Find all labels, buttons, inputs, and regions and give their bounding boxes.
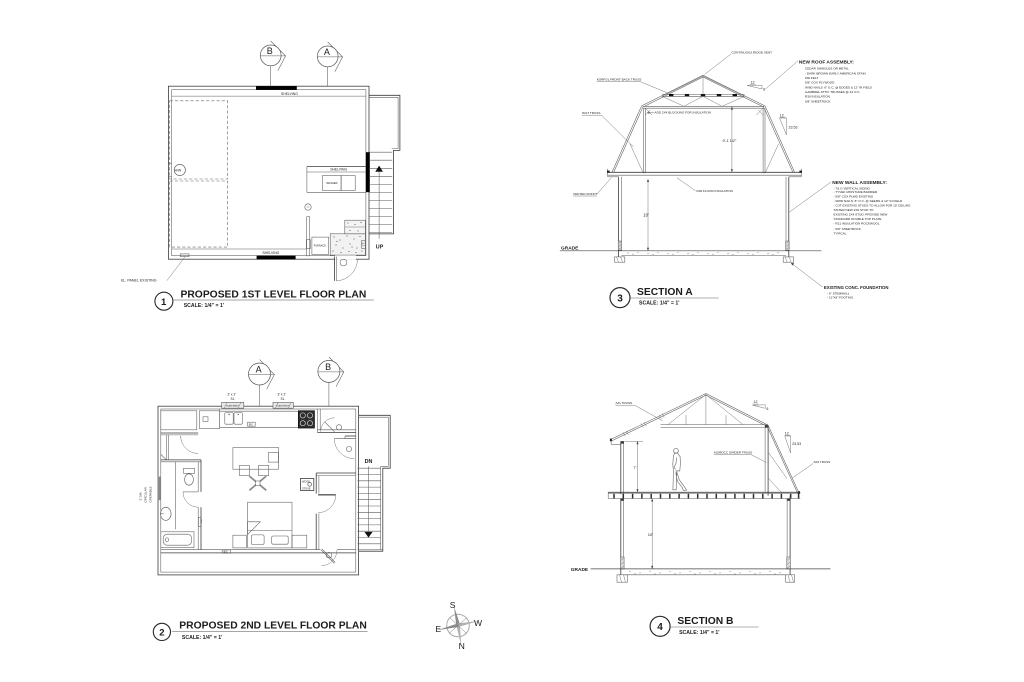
svg-text:5/8" SHEETROCK: 5/8" SHEETROCK	[805, 99, 831, 103]
svg-text:SECTION B: SECTION B	[677, 616, 733, 627]
svg-text:GRADE: GRADE	[571, 567, 589, 573]
svg-text:W/8D NAILS: 6" O.C. @ EDGES &: W/8D NAILS: 6" O.C. @ EDGES & 12" IN FIE…	[805, 85, 873, 89]
svg-text:2: 2	[159, 627, 164, 638]
svg-text:FURNACE: FURNACE	[314, 245, 326, 248]
svg-text:4: 4	[657, 622, 663, 633]
svg-text:SHELVING: SHELVING	[281, 92, 298, 96]
svg-text:6: 6	[763, 88, 765, 92]
svg-text:- W/8D NAILS: 8" O.C. @ SEEMS: - W/8D NAILS: 8" O.C. @ SEEMS & 12" IN F…	[834, 199, 904, 203]
svg-text:3' x 2': 3' x 2'	[278, 393, 287, 397]
svg-text:PLANTSHELF: PLANTSHELF	[226, 405, 240, 408]
svg-text:E: E	[435, 624, 441, 634]
svg-text:EXISTING CONC. FOUNDATION: EXISTING CONC. FOUNDATION	[824, 285, 889, 290]
svg-text:B: B	[325, 362, 331, 372]
svg-text:ADD 2X4 BLOCKING FOR INSULATIO: ADD 2X4 BLOCKING FOR INSULATION	[655, 111, 711, 115]
svg-text:W: W	[474, 618, 483, 628]
svg-text:23.53: 23.53	[789, 125, 798, 129]
svg-text:SCALE: 1/4" = 1': SCALE: 1/4" = 1'	[184, 303, 224, 309]
svg-text:SL: SL	[231, 397, 235, 401]
svg-text:12: 12	[751, 80, 755, 84]
svg-text:- DARK BROWN EARLY AMERICAN ST: - DARK BROWN EARLY AMERICAN STAIN	[805, 71, 866, 75]
svg-text:A: A	[256, 365, 262, 375]
svg-text:SECTION A: SECTION A	[637, 287, 693, 298]
svg-text:B/S: B/S	[224, 551, 228, 554]
svg-text:- CUT EXISTING STUDS TO ALLOW: - CUT EXISTING STUDS TO ALLOW FOR 10' CE…	[834, 204, 912, 208]
svg-text:EL. PANEL EXISTING: EL. PANEL EXISTING	[121, 279, 157, 283]
svg-text:W/LT TRUSS: W/LT TRUSS	[582, 111, 600, 115]
svg-text:A04 TRUSS: A04 TRUSS	[814, 460, 831, 464]
svg-text:23.53: 23.53	[792, 442, 801, 446]
svg-text:- 5/8" SHEETROCK: - 5/8" SHEETROCK	[834, 227, 862, 231]
svg-text:3: 3	[617, 293, 623, 304]
svg-text:AGIRDCC GIRDER TRUSS: AGIRDCC GIRDER TRUSS	[714, 450, 752, 454]
svg-text:PROPOSED 1ST LEVEL FLOOR PLAN: PROPOSED 1ST LEVEL FLOOR PLAN	[181, 290, 367, 301]
svg-text:SL: SL	[281, 397, 285, 401]
svg-text:STANDARD DOUBLE TOP PLATE.: STANDARD DOUBLE TOP PLATE.	[834, 217, 883, 221]
svg-text:STOVE: STOVE	[302, 487, 311, 490]
svg-text:12: 12	[785, 431, 789, 435]
svg-text:A/G TRUSS: A/G TRUSS	[616, 401, 633, 405]
svg-text:3' x 2': 3' x 2'	[228, 393, 237, 397]
svg-text:SISTER NEW 2X6 STUD TO: SISTER NEW 2X6 STUD TO	[834, 208, 875, 212]
svg-text:- TYVEK MOISTURE BARRIER: - TYVEK MOISTURE BARRIER	[834, 190, 879, 194]
svg-text:WASHER: WASHER	[326, 181, 337, 185]
svg-text:B: B	[267, 46, 273, 56]
svg-text:SCALE: 1/4" = 1': SCALE: 1/4" = 1'	[639, 301, 679, 307]
svg-text:PLANTSHELF: PLANTSHELF	[277, 405, 291, 408]
svg-text:NEW ROOF ASSEMBLY:: NEW ROOF ASSEMBLY:	[799, 59, 854, 65]
svg-text:WOOD: WOOD	[302, 481, 310, 484]
svg-text:B/S: B/S	[249, 423, 253, 426]
svg-text:NEW WALL ASSEMBLY:: NEW WALL ASSEMBLY:	[832, 180, 887, 186]
svg-text:R30 INSULATION: R30 INSULATION	[805, 95, 830, 99]
svg-text:10': 10'	[648, 532, 653, 537]
svg-text:DN: DN	[365, 459, 373, 465]
svg-text:10': 10'	[643, 213, 649, 218]
svg-text:SHELVING: SHELVING	[330, 168, 347, 172]
svg-text:5/8" COX PLYWOOD: 5/8" COX PLYWOOD	[805, 81, 835, 85]
svg-text:H/W: H/W	[175, 169, 182, 173]
svg-text:PROPOSED 2ND LEVEL FLOOR PLAN: PROPOSED 2ND LEVEL FLOOR PLAN	[179, 621, 366, 632]
svg-text:B/S: B/S	[200, 520, 202, 524]
svg-text:6: 6	[766, 407, 768, 411]
svg-text:SCALE: 1/4" = 1': SCALE: 1/4" = 1'	[679, 630, 719, 636]
svg-text:CEDAR SHINGLES OR METAL: CEDAR SHINGLES OR METAL	[805, 67, 849, 71]
svg-text:UP: UP	[376, 245, 384, 251]
svg-text:N: N	[459, 641, 465, 651]
svg-text:1: 1	[161, 297, 167, 308]
svg-text:A: A	[324, 47, 330, 57]
svg-text:3' DIA.: 3' DIA.	[139, 491, 143, 500]
svg-text:CONTINUOUS RIDGE VENT: CONTINUOUS RIDGE VENT	[732, 51, 773, 55]
svg-text:9'-1 1/2": 9'-1 1/2"	[723, 139, 738, 143]
svg-text:SHELVING: SHELVING	[262, 251, 279, 255]
svg-text:- R21 INSULATION ROCKWOOL: - R21 INSULATION ROCKWOOL	[834, 222, 880, 226]
svg-text:#30 FELT: #30 FELT	[805, 76, 818, 80]
svg-text:TYPICAL: TYPICAL	[834, 231, 847, 235]
svg-text:OPERABLE: OPERABLE	[149, 486, 153, 502]
svg-text:VENTED SOFFIT: VENTED SOFFIT	[573, 192, 598, 196]
svg-text:S: S	[450, 600, 456, 610]
svg-text:R30 FLOOR INSULATION: R30 FLOOR INSULATION	[697, 189, 733, 193]
svg-text:SCALE: 1/4" = 1': SCALE: 1/4" = 1'	[182, 635, 222, 641]
svg-text:7': 7'	[633, 465, 636, 470]
svg-text:CIRCULAR: CIRCULAR	[144, 486, 148, 502]
svg-text:KORFOL FRONT BACK TRUSS: KORFOL FRONT BACK TRUSS	[597, 78, 642, 82]
svg-text:GRADE: GRADE	[561, 246, 579, 252]
svg-text:12: 12	[754, 400, 758, 404]
svg-text:EXISTING 2X4 STUD. PROVIDE NEW: EXISTING 2X4 STUD. PROVIDE NEW	[834, 213, 888, 217]
svg-text:- 12"X8" FOOTING: - 12"X8" FOOTING	[827, 296, 854, 300]
svg-text:GAMBREL ATTIC TRUSSES @ 24 O.C: GAMBREL ATTIC TRUSSES @ 24 O.C.	[805, 90, 860, 94]
